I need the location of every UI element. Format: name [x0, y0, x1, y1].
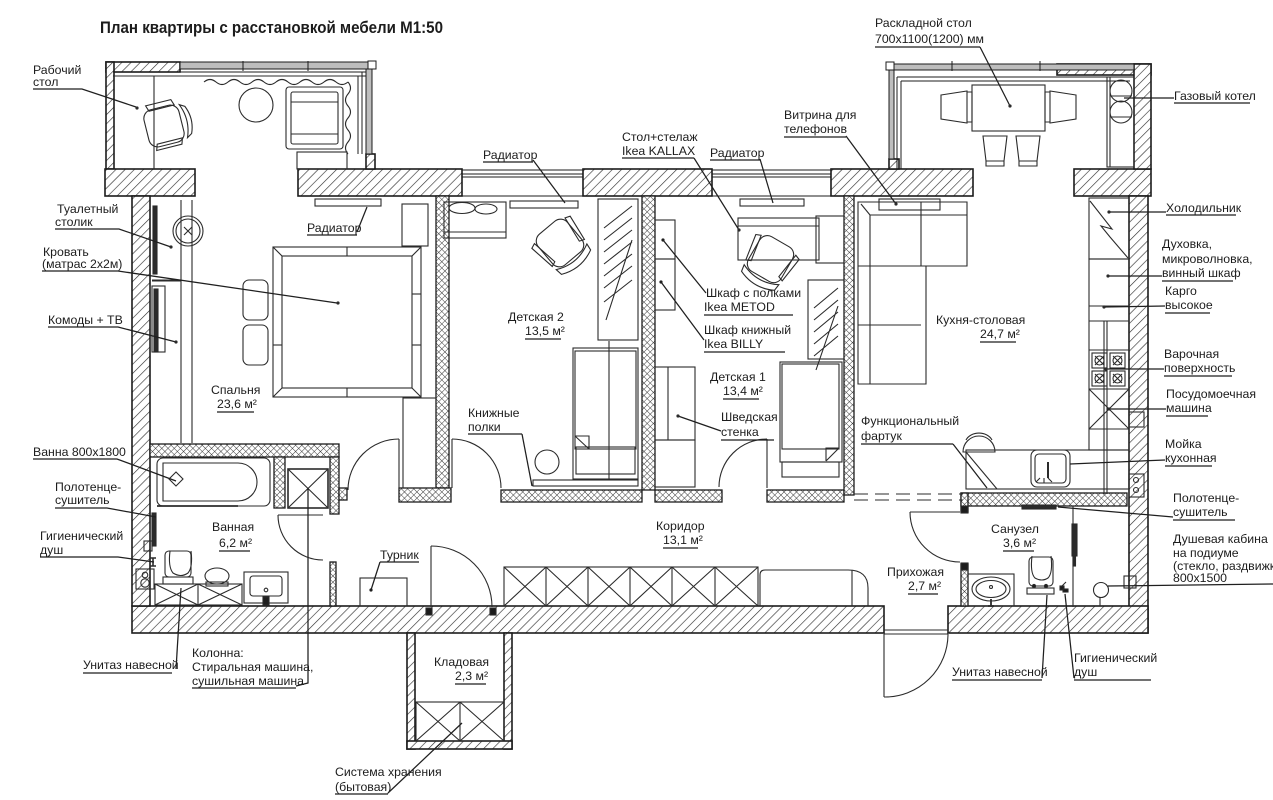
svg-text:Полотенце-: Полотенце- [55, 480, 121, 494]
svg-text:Радиатор: Радиатор [307, 221, 362, 235]
svg-text:Духовка,: Духовка, [1162, 237, 1212, 251]
svg-text:Варочная: Варочная [1164, 347, 1219, 361]
svg-text:Мойка: Мойка [1165, 437, 1202, 451]
svg-text:Шведская: Шведская [721, 410, 778, 424]
svg-text:13,1 м²: 13,1 м² [663, 533, 703, 547]
svg-text:Спальня: Спальня [211, 383, 260, 397]
svg-text:Гигиенический: Гигиенический [1074, 651, 1157, 665]
svg-text:Гигиенический: Гигиенический [40, 529, 123, 543]
svg-text:Газовый котел: Газовый котел [1174, 89, 1256, 103]
svg-text:Карго: Карго [1165, 284, 1197, 298]
svg-text:Туалетный: Туалетный [57, 202, 119, 216]
svg-text:Детская 1: Детская 1 [710, 370, 766, 384]
svg-text:Функциональный: Функциональный [861, 414, 959, 428]
svg-text:сушитель: сушитель [55, 493, 110, 507]
svg-text:Кухня-столовая: Кухня-столовая [936, 313, 1025, 327]
svg-text:13,5 м²: 13,5 м² [525, 324, 565, 338]
svg-text:на подиуме: на подиуме [1173, 546, 1239, 560]
svg-text:Коридор: Коридор [656, 519, 705, 533]
svg-text:душ: душ [1074, 665, 1097, 679]
svg-text:Ванная: Ванная [212, 520, 254, 534]
svg-text:Раскладной стол: Раскладной стол [875, 16, 972, 30]
svg-text:Прихожая: Прихожая [887, 565, 944, 579]
svg-text:Шкаф книжный: Шкаф книжный [704, 323, 791, 337]
svg-text:Колонна:: Колонна: [192, 646, 244, 660]
svg-text:Холодильник: Холодильник [1166, 201, 1242, 215]
svg-text:Посудомоечная: Посудомоечная [1166, 387, 1256, 401]
svg-text:сушильная машина: сушильная машина [192, 674, 304, 688]
svg-text:Турник: Турник [380, 548, 419, 562]
svg-text:800х1500: 800х1500 [1173, 571, 1227, 585]
svg-text:фартук: фартук [861, 429, 902, 443]
svg-text:машина: машина [1166, 401, 1212, 415]
svg-text:Витрина для: Витрина для [784, 108, 856, 122]
svg-text:кухонная: кухонная [1165, 451, 1217, 465]
svg-text:Ikea BILLY: Ikea BILLY [704, 337, 763, 351]
svg-text:3,6 м²: 3,6 м² [1003, 536, 1036, 550]
svg-text:Детская 2: Детская 2 [508, 310, 564, 324]
svg-text:стол: стол [33, 75, 58, 89]
svg-text:Душевая кабина: Душевая кабина [1173, 532, 1268, 546]
svg-text:винный шкаф: винный шкаф [1162, 266, 1241, 280]
svg-text:6,2 м²: 6,2 м² [219, 536, 252, 550]
svg-text:Полотенце-: Полотенце- [1173, 491, 1239, 505]
svg-text:телефонов: телефонов [784, 122, 847, 136]
svg-text:душ: душ [40, 543, 63, 557]
svg-text:Ванна 800х1800: Ванна 800х1800 [33, 445, 126, 459]
svg-text:Кладовая: Кладовая [434, 655, 489, 669]
svg-text:Ikea METOD: Ikea METOD [704, 300, 775, 314]
svg-text:2,3 м²: 2,3 м² [455, 669, 488, 683]
svg-text:Система хранения: Система хранения [335, 765, 442, 779]
svg-text:Стиральная машина,: Стиральная машина, [192, 660, 313, 674]
svg-text:полки: полки [468, 420, 501, 434]
svg-text:2,7 м²: 2,7 м² [908, 579, 941, 593]
svg-text:23,6 м²: 23,6 м² [217, 397, 257, 411]
svg-text:Унитаз навесной: Унитаз навесной [952, 665, 1048, 679]
svg-text:стенка: стенка [721, 425, 759, 439]
svg-text:13,4 м²: 13,4 м² [723, 384, 763, 398]
svg-text:План квартиры с расстановкой м: План квартиры с расстановкой мебели М1:5… [100, 19, 443, 37]
svg-text:(матрас 2х2м): (матрас 2х2м) [42, 257, 122, 271]
svg-text:сушитель: сушитель [1173, 505, 1228, 519]
svg-text:Унитаз навесной: Унитаз навесной [83, 658, 179, 672]
svg-text:поверхность: поверхность [1164, 361, 1235, 375]
svg-text:Санузел: Санузел [991, 522, 1039, 536]
svg-text:Комоды + ТВ: Комоды + ТВ [48, 313, 123, 327]
svg-text:столик: столик [55, 215, 93, 229]
svg-text:Стол+стелаж: Стол+стелаж [622, 130, 698, 144]
svg-text:Шкаф с полками: Шкаф с полками [706, 286, 801, 300]
svg-text:Ikea KALLAX: Ikea KALLAX [622, 144, 695, 158]
svg-text:микроволновка,: микроволновка, [1162, 252, 1253, 266]
svg-text:Радиатор: Радиатор [483, 148, 538, 162]
svg-text:высокое: высокое [1165, 298, 1213, 312]
svg-text:Радиатор: Радиатор [710, 146, 765, 160]
svg-text:700х1100(1200) мм: 700х1100(1200) мм [875, 32, 984, 46]
svg-text:Книжные: Книжные [468, 406, 520, 420]
svg-text:(бытовая): (бытовая) [335, 780, 391, 794]
svg-text:24,7 м²: 24,7 м² [980, 327, 1020, 341]
